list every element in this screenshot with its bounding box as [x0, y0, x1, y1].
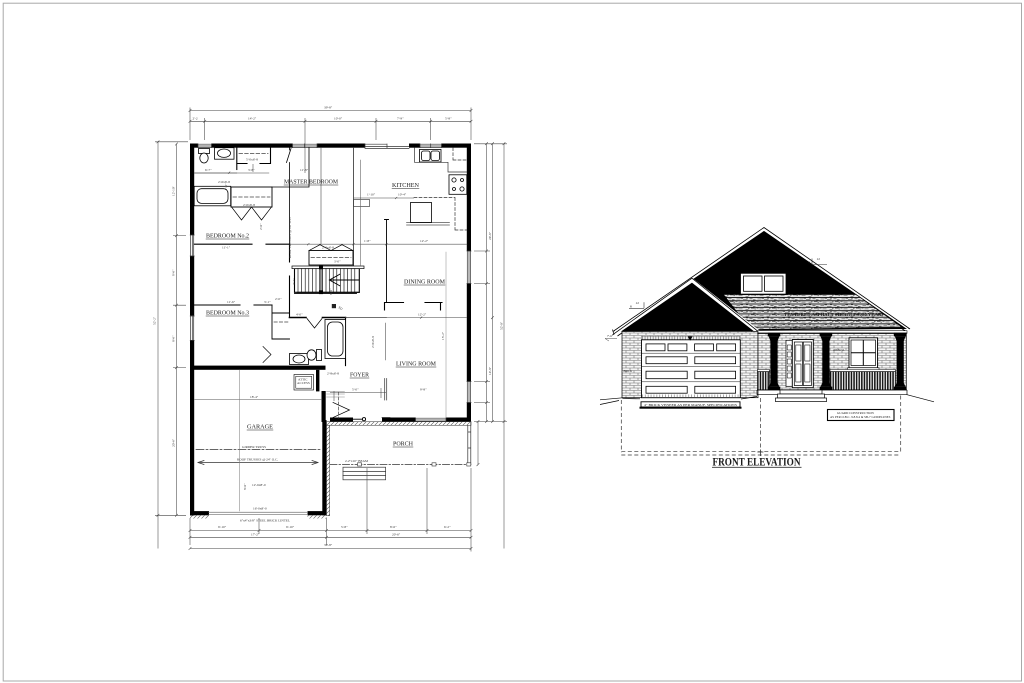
svg-text:KITCHEN: KITCHEN: [392, 182, 419, 189]
svg-text:18'-4": 18'-4": [250, 395, 259, 399]
svg-text:11'-8": 11'-8": [300, 168, 309, 172]
svg-text:8'-0": 8'-0": [243, 483, 247, 490]
svg-text:48X36 SL: 48X36 SL: [833, 349, 845, 352]
svg-text:6'-7": 6'-7": [205, 168, 212, 172]
svg-text:3'-8": 3'-8": [248, 168, 255, 172]
svg-text:GARAGE: GARAGE: [247, 424, 273, 431]
svg-text:3'-1": 3'-1": [264, 300, 271, 304]
svg-text:5'-8": 5'-8": [445, 116, 452, 120]
svg-text:7'-9": 7'-9": [397, 116, 404, 120]
svg-text:2'-0": 2'-0": [259, 223, 263, 230]
svg-text:7'-6": 7'-6": [224, 183, 228, 190]
svg-text:ROOF TRUSSES @ 24" O.C.: ROOF TRUSSES @ 24" O.C.: [288, 217, 292, 258]
svg-text:AS PER O.B.C. 9.8.8.4 & SB-7 G: AS PER O.B.C. 9.8.8.4 & SB-7 GUIDELINES: [830, 415, 891, 419]
svg-text:2'-2: 2'-2: [193, 116, 198, 120]
svg-text:ACCESS: ACCESS: [297, 381, 310, 385]
svg-text:DINING ROOM: DINING ROOM: [404, 279, 445, 286]
svg-text:5'-0": 5'-0": [352, 388, 359, 392]
svg-text:FOYER: FOYER: [350, 372, 370, 379]
svg-text:9'-6": 9'-6": [172, 269, 176, 276]
svg-text:16'-0x8'-0: 16'-0x8'-0: [253, 507, 267, 511]
svg-text:10'-0": 10'-0": [334, 116, 343, 120]
svg-text:2'-8x6'-8: 2'-8x6'-8: [327, 372, 339, 376]
svg-text:BEDROOM No.3: BEDROOM No.3: [206, 310, 249, 317]
svg-text:14'-8": 14'-8": [488, 366, 492, 375]
svg-text:3'-0": 3'-0": [334, 260, 341, 264]
svg-text:ROOF TRUSSES @ 24" O.C.: ROOF TRUSSES @ 24" O.C.: [237, 458, 278, 462]
svg-text:1'-8": 1'-8": [364, 239, 371, 243]
svg-text:12'-6x8'-0: 12'-6x8'-0: [252, 483, 266, 487]
svg-text:20'-6": 20'-6": [172, 438, 176, 447]
svg-text:2'-0x6'-8: 2'-0x6'-8: [322, 246, 334, 250]
svg-text:PORCH: PORCH: [393, 441, 413, 448]
svg-text:7'-6": 7'-6": [607, 334, 614, 338]
svg-text:3'-2": 3'-2": [292, 278, 296, 285]
svg-text:1'-10": 1'-10": [367, 193, 376, 197]
svg-text:8'-6": 8'-6": [172, 335, 176, 342]
svg-text:14'-2": 14'-2": [248, 116, 257, 120]
svg-text:8: 8: [809, 261, 811, 265]
svg-text:8: 8: [630, 305, 632, 309]
svg-text:2'-0": 2'-0": [275, 297, 282, 301]
svg-text:MASTER BEDROOM: MASTER BEDROOM: [284, 179, 338, 186]
svg-text:12: 12: [817, 257, 821, 261]
svg-text:24'-6": 24'-6": [488, 231, 492, 240]
svg-text:4'-0": 4'-0": [296, 313, 303, 317]
svg-text:52'-0": 52'-0": [500, 321, 504, 330]
svg-text:6"x4"x3/8" STEEL BRICK LINTEL: 6"x4"x3/8" STEEL BRICK LINTEL: [240, 519, 290, 523]
svg-text:BEDROOM No.2: BEDROOM No.2: [206, 233, 249, 240]
svg-text:12'-10": 12'-10": [172, 185, 176, 196]
svg-text:15'-2": 15'-2": [441, 331, 445, 340]
svg-text:TEXTURED ASPHALT SHINGLES (20: TEXTURED ASPHALT SHINGLES (20 YEAR): [784, 312, 883, 317]
svg-text:FRONT ELEVATION: FRONT ELEVATION: [713, 455, 801, 468]
svg-text:9'-8": 9'-8": [420, 388, 427, 392]
svg-text:2'-0x6'-8: 2'-0x6'-8: [243, 203, 255, 207]
svg-text:39'-8": 39'-8": [324, 543, 333, 547]
svg-text:6'-2": 6'-2": [444, 525, 451, 529]
svg-text:LIVING ROOM: LIVING ROOM: [396, 361, 436, 368]
svg-text:9'-10": 9'-10": [286, 525, 295, 529]
svg-text:4" BRICK VENEER AS PER MANUF.: 4" BRICK VENEER AS PER MANUF. SPECIFICAT…: [644, 403, 737, 407]
svg-text:17'-2": 17'-2": [251, 533, 260, 537]
svg-text:12: 12: [636, 301, 640, 305]
svg-text:5'-0x6'-8: 5'-0x6'-8: [246, 158, 258, 162]
svg-text:GIRDER TRUSS: GIRDER TRUSS: [242, 445, 266, 449]
svg-text:2-2"x10" BEAM: 2-2"x10" BEAM: [345, 459, 368, 463]
svg-text:2'-6x6'-8: 2'-6x6'-8: [218, 180, 230, 184]
svg-text:39'-8": 39'-8": [324, 106, 333, 110]
svg-text:9'-8": 9'-8": [329, 288, 333, 295]
svg-text:12'-2": 12'-2": [418, 313, 427, 317]
svg-text:11'-1": 11'-1": [222, 246, 231, 250]
svg-text:12'-2": 12'-2": [420, 239, 429, 243]
svg-text:10'-4": 10'-4": [398, 193, 407, 197]
svg-text:5'-8": 5'-8": [341, 525, 348, 529]
svg-text:2'-8x6'-8: 2'-8x6'-8: [371, 336, 375, 348]
svg-text:BRICK: BRICK: [624, 370, 633, 373]
svg-text:20'-6": 20'-6": [392, 533, 401, 537]
svg-text:11'-6": 11'-6": [227, 300, 236, 304]
svg-text:52'-2": 52'-2": [153, 316, 157, 325]
svg-text:9'-10": 9'-10": [218, 525, 227, 529]
svg-text:8'-6": 8'-6": [390, 525, 397, 529]
